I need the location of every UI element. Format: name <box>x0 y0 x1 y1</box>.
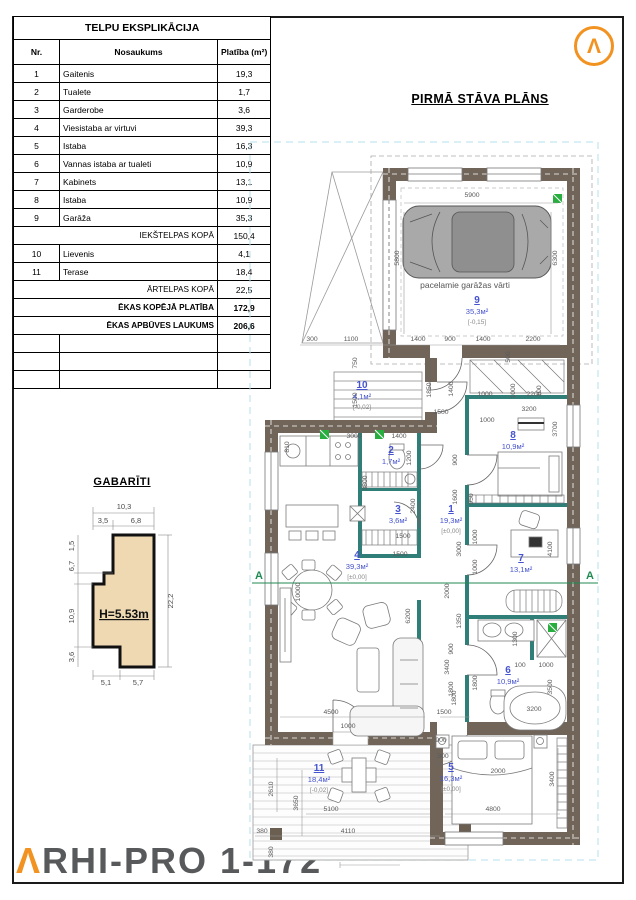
dim-label: 3800 <box>362 475 369 490</box>
dim-label: 1000 <box>538 662 553 669</box>
dim-label: 10000 <box>295 582 302 601</box>
tv-room8 <box>518 418 544 430</box>
window-room5 <box>445 832 503 845</box>
dim-label: 750 <box>352 357 359 369</box>
dim-label: 3000 <box>456 541 463 556</box>
car <box>403 206 551 278</box>
dim-label: 1000 <box>340 723 355 730</box>
dim-label: 3650 <box>293 795 300 810</box>
room-area: 19,3м² <box>440 516 463 525</box>
room-level: [±0,00] <box>441 786 461 793</box>
dim-label: 1100 <box>344 336 359 343</box>
garage-window <box>408 168 462 181</box>
dim-label: 6200 <box>405 608 412 623</box>
window-living-2 <box>265 553 278 605</box>
dim-label: 380 <box>268 846 275 858</box>
vent-icon <box>548 623 557 632</box>
gabariti-dim-label: 5,1 <box>101 678 111 687</box>
dim-label: 4100 <box>547 541 554 556</box>
room-area: 3,6м² <box>389 516 408 525</box>
room-area: 35,3м² <box>466 307 489 316</box>
dim-label: 1400 <box>410 336 425 343</box>
dim-label: 2000 <box>490 768 505 775</box>
room-number: 4 <box>354 550 360 561</box>
dim-label: 1000 <box>472 529 479 544</box>
dim-label: 3400 <box>444 659 451 674</box>
room-area: 13,1м² <box>510 565 533 574</box>
dim-label: 1400 <box>475 336 490 343</box>
vent-icon <box>320 430 329 439</box>
room-level: [±0,00] <box>441 528 461 535</box>
dim-label: 380 <box>256 828 268 835</box>
dim-label: 1600 <box>452 489 459 504</box>
dim-label: 1800 <box>472 675 479 690</box>
section-letter: A <box>255 570 263 582</box>
room-number: 10 <box>356 380 368 391</box>
gabariti-dim-label: 3,6 <box>67 652 76 662</box>
room-area: 10,9м² <box>502 442 525 451</box>
radiator-room7 <box>506 590 562 612</box>
tv-cabinet <box>280 588 291 662</box>
dim-label: 1800 <box>451 690 458 705</box>
dim-label: 1000 <box>477 391 492 398</box>
dim-label: 3400 <box>549 771 556 786</box>
room-number: 9 <box>474 295 480 306</box>
dim-label: 500 <box>505 351 512 363</box>
garage-hall-opening <box>430 345 462 358</box>
room-level: [-0,15] <box>468 319 486 326</box>
dim-label: 900 <box>452 454 459 466</box>
room-number: 7 <box>518 553 524 564</box>
dim-label: 1500 <box>436 709 451 716</box>
gabariti-dim-label: 1,5 <box>67 541 76 551</box>
gabariti-dim-label: 5,7 <box>133 678 143 687</box>
dim-label: 810 <box>284 441 291 453</box>
dim-label: 1350 <box>456 613 463 628</box>
dim-label: 1300 <box>512 631 519 646</box>
room-number: 2 <box>388 445 394 456</box>
room-area: 10,9м² <box>497 677 520 686</box>
kitchen-counter <box>280 436 358 466</box>
kitchen-island <box>286 505 338 540</box>
room-number: 3 <box>395 504 401 515</box>
deck-post <box>270 828 282 840</box>
room-area: 18,4м² <box>308 775 331 784</box>
window-room8 <box>567 405 580 447</box>
dim-label: 2200 <box>525 336 540 343</box>
dim-label: 2610 <box>268 781 275 796</box>
dim-label: 3700 <box>552 421 559 436</box>
dim-label: 1850 <box>426 382 433 397</box>
dim-label: 950 <box>468 493 475 505</box>
drawing-sheet: TELPU EKSPLIKĀCIJANr.NosaukumsPlatība (m… <box>0 0 636 900</box>
dim-label: 900 <box>435 737 447 744</box>
dim-label: 2400 <box>410 498 417 513</box>
dim-label: 6300 <box>552 250 559 265</box>
dim-label: 3000 <box>346 433 361 440</box>
dim-label: 1000 <box>510 383 517 398</box>
dim-label: 1000 <box>479 417 494 424</box>
fireplace <box>350 506 365 521</box>
entry-stairs <box>334 372 422 428</box>
room-number: 8 <box>510 430 516 441</box>
dim-label: 1200 <box>406 450 413 465</box>
dim-label: 1500 <box>433 409 448 416</box>
room-number: 6 <box>505 665 511 676</box>
room-level: [±0,00] <box>347 574 367 581</box>
dim-label: 1000 <box>472 559 479 574</box>
dim-label: 2000 <box>444 583 451 598</box>
dim-label: 1500 <box>392 551 407 558</box>
floor-plan-svg: A A pacelamie garāžas vārti 590058006300… <box>0 0 636 900</box>
bed-room8 <box>498 452 562 496</box>
window-living-1 <box>265 452 278 510</box>
room-number: 1 <box>448 504 454 515</box>
radiator-room5 <box>557 738 567 828</box>
dim-label: 2200 <box>526 391 541 398</box>
nightstand <box>534 735 547 748</box>
dim-label: 3200 <box>521 406 536 413</box>
bedroom-door-opening <box>437 722 467 735</box>
dim-label: 5800 <box>394 250 401 265</box>
dim-label: 4500 <box>323 709 338 716</box>
dim-label: 300 <box>306 336 318 343</box>
room-number: 11 <box>314 763 325 774</box>
dim-label: 100 <box>514 662 526 669</box>
dim-label: 4110 <box>341 828 356 835</box>
vent-icon <box>375 430 384 439</box>
room-area: 39,3м² <box>346 562 369 571</box>
dim-label: 300 <box>437 753 449 760</box>
footprint-shape <box>93 535 154 667</box>
room-area: 16,3м² <box>440 774 463 783</box>
height-label: H=5.53m <box>99 607 149 621</box>
window-room7 <box>567 528 580 564</box>
dim-label: 5100 <box>323 806 338 813</box>
dim-label: 1400 <box>448 381 455 396</box>
dim-label: 5900 <box>464 192 479 199</box>
dim-label: 3500 <box>547 679 554 694</box>
armchair <box>330 616 362 647</box>
dim-label: 4800 <box>485 806 500 813</box>
dim-label: 1500 <box>395 533 410 540</box>
dim-label: 900 <box>444 336 456 343</box>
gabariti-dim-label: 6,8 <box>131 516 141 525</box>
gabariti-diagram: H=5.53m 10,33,56,822,21,56,710,93,65,15,… <box>67 502 175 687</box>
vent-icon <box>553 194 562 203</box>
bath-sinks <box>478 620 534 641</box>
room-area: 1,7м² <box>382 457 401 466</box>
section-letter: A <box>586 570 594 582</box>
dim-label: 3200 <box>526 706 541 713</box>
room-number: 5 <box>448 762 454 773</box>
gabariti-dim-label: 10,9 <box>67 609 76 624</box>
gabariti-dim-label: 6,7 <box>67 561 76 571</box>
garage-window <box>487 168 541 181</box>
gabariti-dim-label: 22,2 <box>166 594 175 609</box>
room-level: [-0,02] <box>353 404 371 411</box>
gabariti-dim-label: 10,3 <box>117 502 132 511</box>
dim-label: 1400 <box>391 433 406 440</box>
gabariti-dim-label: 3,5 <box>98 516 108 525</box>
closet-room8 <box>470 360 564 393</box>
armchair <box>362 601 392 629</box>
room-area: 4,1м² <box>353 392 372 401</box>
garage-door-label: pacelamie garāžas vārti <box>420 280 510 290</box>
room-level: [-0,02] <box>310 787 328 794</box>
coffee-table <box>357 648 379 692</box>
dim-label: 900 <box>448 643 455 655</box>
